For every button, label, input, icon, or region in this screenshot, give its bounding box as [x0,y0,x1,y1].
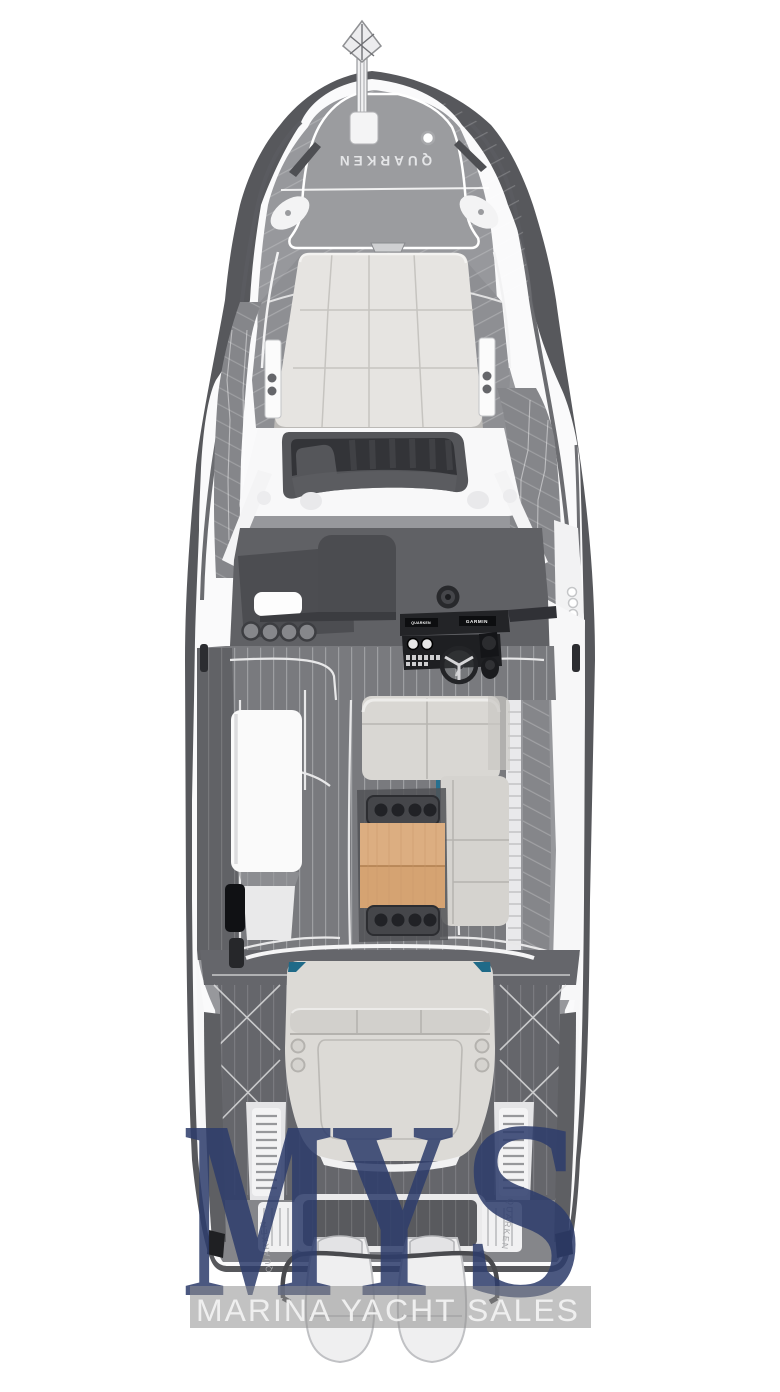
svg-text:MARINA YACHT SALES: MARINA YACHT SALES [196,1292,580,1328]
svg-text:QUARKEN: QUARKEN [411,621,431,625]
svg-text:QUARKEN: QUARKEN [336,153,432,168]
svg-text:GARMIN: GARMIN [466,619,488,624]
